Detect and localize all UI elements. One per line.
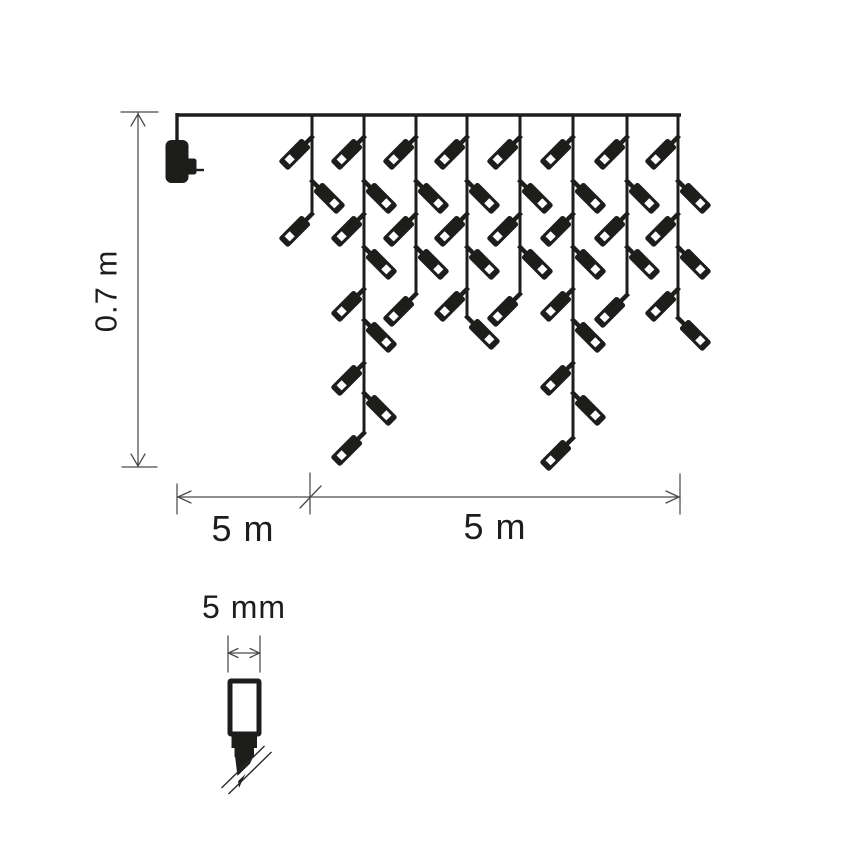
led-bulb-icon bbox=[539, 432, 579, 472]
led-bulb-icon bbox=[672, 312, 712, 352]
arrow-right-icon bbox=[666, 497, 679, 503]
arrow-right-icon bbox=[250, 649, 260, 654]
strand-8 bbox=[644, 114, 711, 352]
strand-1 bbox=[278, 114, 345, 248]
led-bulb-icon bbox=[330, 427, 370, 467]
strand-6 bbox=[539, 114, 606, 472]
adapter-body bbox=[166, 140, 189, 183]
lit-length-label: 5 m bbox=[463, 509, 526, 545]
bulb-socket bbox=[235, 747, 255, 757]
strand-7 bbox=[593, 114, 660, 329]
lead-length-label: 5 m bbox=[211, 511, 274, 547]
arrow-up-icon bbox=[131, 114, 138, 126]
strand-5 bbox=[486, 114, 553, 328]
diagram-canvas: 0.7 m 5 m 5 m 5 mm bbox=[0, 0, 850, 850]
icicle-lights-diagram bbox=[0, 0, 850, 850]
bulb-lens bbox=[230, 681, 259, 734]
bulb-width-label: 5 mm bbox=[202, 591, 286, 623]
arrow-up-icon bbox=[138, 114, 145, 126]
height-dimension bbox=[121, 112, 158, 467]
bulb-width-dimension bbox=[228, 636, 260, 672]
led-bulb-icon bbox=[278, 208, 318, 248]
arrow-down-icon bbox=[131, 454, 138, 466]
arrow-left-icon bbox=[229, 649, 239, 654]
arrow-left-icon bbox=[178, 491, 191, 497]
strand-3 bbox=[382, 114, 449, 328]
bulb-base bbox=[232, 736, 258, 748]
height-dimension-label: 0.7 m bbox=[91, 250, 122, 333]
arrow-left-icon bbox=[229, 653, 239, 658]
led-bulb-icon bbox=[593, 289, 633, 329]
arrow-right-icon bbox=[250, 653, 260, 658]
arrow-down-icon bbox=[138, 454, 145, 466]
led-bulb-icon bbox=[382, 288, 422, 328]
arrow-left-icon bbox=[178, 497, 191, 503]
adapter-plug-tab bbox=[186, 159, 197, 175]
arrow-right-icon bbox=[666, 491, 679, 497]
led-bulb-detail bbox=[222, 681, 272, 794]
power-adapter bbox=[166, 113, 205, 183]
led-bulb-icon bbox=[486, 288, 526, 328]
